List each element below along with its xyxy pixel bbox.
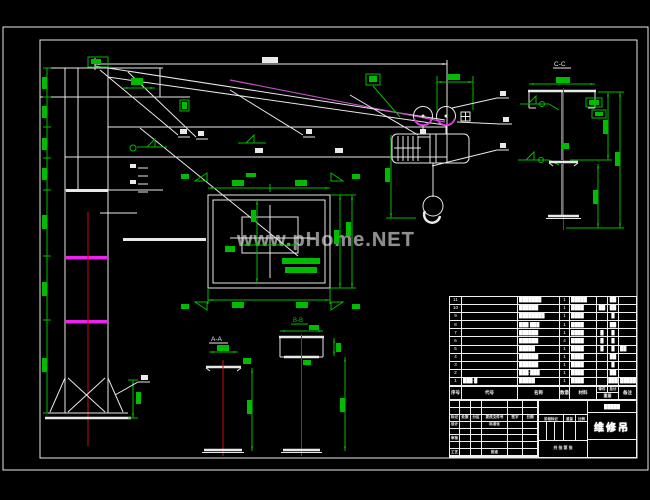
label-count: 处数 [460, 415, 471, 422]
bom-row: 3██████1█████ [450, 362, 636, 370]
weld-symbol [195, 302, 207, 310]
bom-cell-code [462, 297, 518, 304]
bom-cell-w2: ██ [608, 370, 619, 377]
bom-cell-mat: ████ [570, 337, 597, 344]
label-process: 工艺 [450, 449, 460, 456]
bom-header-name: 名称 [518, 387, 560, 399]
bom-cell-code [462, 329, 518, 336]
bom-cell-note [619, 297, 636, 304]
base-plate-plan-view [123, 173, 360, 310]
hook [424, 211, 440, 223]
bom-cell-note [619, 321, 636, 328]
weld-symbol [520, 96, 559, 110]
bom-rows: 11███████1███████10██████1████████9█████… [450, 297, 636, 386]
bom-cell-seq: 2 [450, 370, 462, 377]
weld-symbol [331, 302, 343, 310]
title-block-stage-area: 阶段标记 重量 比例 共 张 第 张 [538, 401, 587, 457]
bom-cell-qty: 1 [560, 297, 570, 304]
title-block: 标记 处数 分区 更改文件号 签字 日期 设计 标准化 审核 工艺 批准 阶段标… [449, 400, 637, 458]
bom-cell-name: ██████ [518, 305, 560, 312]
bom-cell-mat: ████ [570, 346, 597, 353]
label-scale: 比例 [576, 415, 587, 421]
bom-cell-w2: ██ [608, 321, 619, 328]
section-a-label: A-A [211, 336, 223, 343]
bom-cell-note [619, 313, 636, 320]
bom-row: 8███ ███1██████ [450, 321, 636, 329]
bom-cell-w1 [597, 378, 608, 385]
weld-symbol [238, 135, 266, 143]
bom-cell-qty: 1 [560, 313, 570, 320]
bom-cell-name: ██████ [518, 362, 560, 369]
bom-cell-w1: ██ [597, 305, 608, 312]
drawing-title: 维修吊 [588, 413, 636, 440]
label-approve: 批准 [482, 449, 508, 456]
bom-cell-w1 [597, 297, 608, 304]
splice-band [66, 189, 108, 192]
label-weight: 重量 [564, 415, 576, 421]
label-doc-no: 更改文件号 [482, 415, 508, 422]
title-block-name-area: █████ 维修吊 [587, 401, 636, 457]
bom-cell-qty: 1 [560, 378, 570, 385]
label-sign: 签字 [508, 415, 523, 422]
label-check: 审核 [450, 435, 460, 442]
bom-cell-mat: ████ [570, 370, 597, 377]
bom-row: 2███-███1██████ [450, 370, 636, 378]
bom-cell-code [462, 337, 518, 344]
bom-cell-code [462, 313, 518, 320]
bom-cell-name: ██████ [518, 354, 560, 361]
bom-cell-code [462, 321, 518, 328]
bom-cell-w1: █ [597, 329, 608, 336]
bom-cell-w2: █ [608, 337, 619, 344]
bom-row: 7██████1██████ [450, 329, 636, 337]
rail-in-plan [123, 238, 206, 241]
label-standard: 标准化 [482, 422, 508, 429]
bom-header-mat: 材料 [570, 387, 597, 399]
bom-cell-name: ████████ [518, 313, 560, 320]
bom-cell-name: █████ [518, 378, 560, 385]
bom-cell-mat: ████ [570, 321, 597, 328]
bom-header-weight: 单件 总计 重量 [597, 387, 619, 399]
hook-block [423, 196, 443, 216]
bom-header-qty: 数量 [560, 387, 570, 399]
weld-symbol [331, 173, 343, 181]
bom-cell-code [462, 346, 518, 353]
bom-row: 10██████1████████ [450, 305, 636, 313]
bom-cell-note: ██████ [619, 378, 636, 385]
section-a: A-A [202, 336, 252, 456]
bom-cell-qty: 1 [560, 346, 570, 353]
bom-cell-mat: ████ [570, 329, 597, 336]
column-base [45, 375, 150, 418]
splice-band [66, 320, 108, 324]
bom-cell-note [619, 337, 636, 344]
title-block-revision-grid: 标记 处数 分区 更改文件号 签字 日期 设计 标准化 审核 工艺 批准 [450, 401, 538, 457]
label-sheets: 共 张 第 张 [539, 441, 587, 455]
label-mark: 标记 [450, 415, 460, 422]
section-b-label: B-B [293, 318, 303, 324]
bom-cell-note [619, 329, 636, 336]
bom-row: 5█████1████████ [450, 346, 636, 354]
bom-cell-name: ███████ [518, 297, 560, 304]
label-design: 设计 [450, 422, 460, 429]
part-callouts [100, 70, 430, 256]
bom-cell-w2: █ [608, 329, 619, 336]
bom-cell-seq: 5 [450, 346, 462, 353]
bom-cell-note [619, 305, 636, 312]
bom-cell-code [462, 305, 518, 312]
bom-cell-code [462, 354, 518, 361]
bom-cell-seq: 8 [450, 321, 462, 328]
bom-cell-mat: ████ [570, 378, 597, 385]
bom-cell-mat: █████ [570, 297, 597, 304]
bom-table: 11███████1███████10██████1████████9█████… [449, 296, 637, 400]
bom-cell-w2: █ [608, 346, 619, 353]
bom-cell-name: ███ ███ [518, 321, 560, 328]
bom-header-weight-total: 总计 [608, 387, 618, 392]
bom-header-seq: 序号 [450, 387, 462, 399]
bom-cell-seq: 1 [450, 378, 462, 385]
bom-cell-mat: ████ [570, 305, 597, 312]
bom-cell-note [619, 362, 636, 369]
illegible-dimension [262, 57, 278, 63]
bom-cell-w2: ██ [608, 305, 619, 312]
bom-header-weight-each: 单件 [597, 387, 608, 392]
bom-cell-w2: ██ [608, 354, 619, 361]
bom-cell-w1 [597, 313, 608, 320]
bom-cell-w2: ██ [608, 297, 619, 304]
bom-cell-seq: 7 [450, 329, 462, 336]
section-b: B-B [279, 318, 345, 456]
section-c: C-C [518, 61, 624, 230]
label-date: 日期 [523, 415, 538, 422]
bom-cell-qty: 1 [560, 305, 570, 312]
label-zone: 分区 [471, 415, 482, 422]
bom-cell-qty: 1 [560, 354, 570, 361]
illegible-note [282, 258, 320, 264]
bom-cell-seq: 6 [450, 337, 462, 344]
bom-cell-seq: 9 [450, 313, 462, 320]
bom-cell-qty: 1 [560, 321, 570, 328]
bom-cell-note [619, 370, 636, 377]
crane-column [40, 68, 190, 446]
bom-cell-code [462, 362, 518, 369]
bom-row: 4██████1██████ [450, 354, 636, 362]
bom-header-note: 备注 [619, 387, 636, 399]
bom-cell-name: ██████ [518, 337, 560, 344]
bom-cell-seq: 10 [450, 305, 462, 312]
bom-cell-w1 [597, 362, 608, 369]
bom-cell-code [462, 370, 518, 377]
label-stage: 阶段标记 [539, 415, 564, 421]
bom-row: 9████████1█████ [450, 313, 636, 321]
bom-cell-qty: 1 [560, 329, 570, 336]
bom-row: 11███████1███████ [450, 297, 636, 305]
bom-cell-qty: 1 [560, 362, 570, 369]
bom-cell-name: ███-███ [518, 370, 560, 377]
bom-cell-w1 [597, 354, 608, 361]
illegible-note [285, 267, 317, 273]
bom-row: 6██████4██████ [450, 337, 636, 345]
bom-cell-name: █████ [518, 346, 560, 353]
bom-cell-seq: 4 [450, 354, 462, 361]
bom-cell-note: ██ [619, 346, 636, 353]
bom-cell-w1 [597, 321, 608, 328]
section-c-label: C-C [554, 61, 566, 68]
cad-drawing-screenshot: www.pHome.NET [0, 0, 650, 500]
bom-cell-w1: █ [597, 337, 608, 344]
bom-header-weight-label: 重量 [604, 393, 612, 399]
splice-band [66, 256, 108, 260]
height-dimension-chain [42, 68, 51, 413]
bom-cell-qty: 4 [560, 337, 570, 344]
bom-cell-w2: █ [608, 313, 619, 320]
bom-cell-w1 [597, 370, 608, 377]
tie-rod [95, 66, 445, 125]
bom-cell-w1: █ [597, 346, 608, 353]
bom-cell-mat: ████ [570, 354, 597, 361]
bom-cell-mat: ████ [570, 362, 597, 369]
bom-header-code: 代号 [462, 387, 518, 399]
bom-cell-code: ███-█ [462, 378, 518, 385]
bom-cell-name: ██████ [518, 329, 560, 336]
bom-header-row: 序号 代号 名称 数量 材料 单件 总计 重量 备注 [450, 386, 636, 399]
bom-cell-seq: 11 [450, 297, 462, 304]
bom-row: 1███-██████1█████████████ [450, 378, 636, 386]
bom-cell-mat: ████ [570, 313, 597, 320]
bom-cell-note [619, 354, 636, 361]
company-cell: █████ [588, 401, 636, 413]
bom-cell-w2: █ [608, 362, 619, 369]
bom-cell-qty: 1 [560, 370, 570, 377]
bom-cell-seq: 3 [450, 362, 462, 369]
bom-cell-w2: ███ [608, 378, 619, 385]
